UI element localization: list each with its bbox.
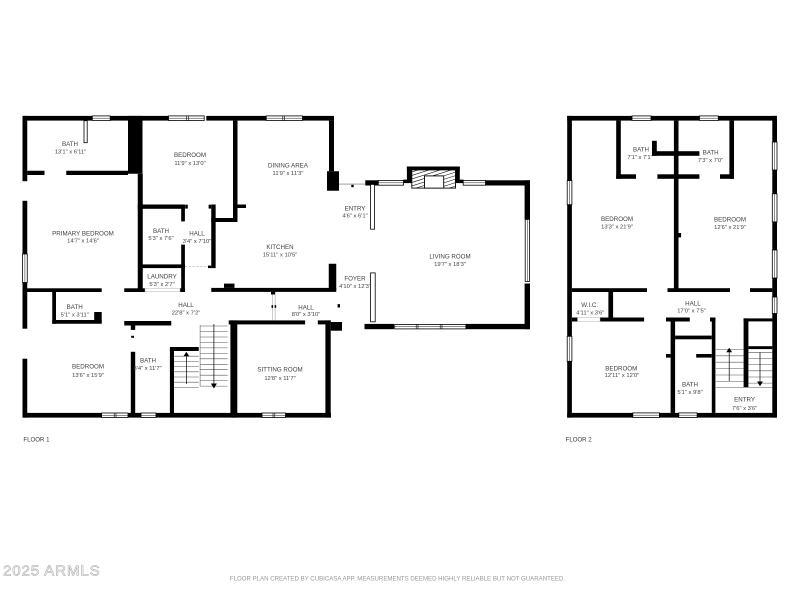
svg-text:HALL: HALL <box>189 231 205 238</box>
svg-text:22'8" x 7'2": 22'8" x 7'2" <box>172 310 201 316</box>
svg-text:13'6" x 15'9": 13'6" x 15'9" <box>72 373 104 379</box>
svg-text:4'10" x 12'3": 4'10" x 12'3" <box>339 284 371 290</box>
svg-text:15'11" x 10'5": 15'11" x 10'5" <box>263 252 298 258</box>
svg-text:BATH: BATH <box>633 147 649 154</box>
svg-text:BEDROOM: BEDROOM <box>174 152 206 159</box>
svg-text:5'3" x 2'7": 5'3" x 2'7" <box>149 282 174 288</box>
svg-text:12'8" x 11'7": 12'8" x 11'7" <box>264 376 295 382</box>
svg-text:LIVING ROOM: LIVING ROOM <box>429 254 470 261</box>
svg-text:7'1" x 7'1": 7'1" x 7'1" <box>627 155 652 161</box>
svg-text:4'6" x 6'1": 4'6" x 6'1" <box>342 214 367 220</box>
svg-text:FOYER: FOYER <box>344 276 366 283</box>
svg-text:BATH: BATH <box>703 150 719 157</box>
svg-text:SITTING ROOM: SITTING ROOM <box>257 367 302 374</box>
svg-text:BEDROOM: BEDROOM <box>605 365 637 372</box>
svg-text:7'3" x 7'0": 7'3" x 7'0" <box>698 158 723 164</box>
svg-text:DINING AREA: DINING AREA <box>268 163 309 170</box>
svg-text:PRIMARY BEDROOM: PRIMARY BEDROOM <box>52 230 114 237</box>
svg-text:FLOOR 1: FLOOR 1 <box>23 437 50 444</box>
svg-text:17'0" x 7'5": 17'0" x 7'5" <box>677 308 706 314</box>
svg-text:ENTRY: ENTRY <box>345 205 366 212</box>
svg-text:LAUNDRY: LAUNDRY <box>147 274 176 281</box>
svg-text:2025 ARMLS: 2025 ARMLS <box>3 563 101 580</box>
svg-text:8'0" x 3'10": 8'0" x 3'10" <box>292 312 321 318</box>
svg-text:HALL: HALL <box>298 304 314 311</box>
svg-text:BATH: BATH <box>140 357 156 364</box>
svg-text:5'1" x 3'11": 5'1" x 3'11" <box>61 313 89 319</box>
svg-text:12'6" x 21'9": 12'6" x 21'9" <box>714 225 746 231</box>
svg-text:ENTRY: ENTRY <box>734 397 755 404</box>
svg-text:BEDROOM: BEDROOM <box>601 216 633 223</box>
svg-text:FLOOR PLAN CREATED BY CUBICASA: FLOOR PLAN CREATED BY CUBICASA APP. MEAS… <box>230 576 565 583</box>
svg-text:5'1" x 9'8": 5'1" x 9'8" <box>677 390 702 396</box>
svg-text:BEDROOM: BEDROOM <box>714 217 746 224</box>
svg-text:7'6" x 3'6": 7'6" x 3'6" <box>732 406 757 412</box>
svg-text:HALL: HALL <box>685 300 701 307</box>
svg-text:BATH: BATH <box>153 228 169 235</box>
svg-text:BEDROOM: BEDROOM <box>72 363 104 370</box>
svg-text:4'11" x 3'6": 4'11" x 3'6" <box>576 311 604 317</box>
svg-text:11'9" x 11'3": 11'9" x 11'3" <box>273 171 304 177</box>
svg-text:13'3" x 21'9": 13'3" x 21'9" <box>601 225 633 231</box>
svg-text:19'7" x 18'3": 19'7" x 18'3" <box>434 262 466 268</box>
svg-text:3'4" x 7'10": 3'4" x 7'10" <box>183 239 212 245</box>
svg-text:KITCHEN: KITCHEN <box>266 244 293 251</box>
svg-text:12'11" x 12'0": 12'11" x 12'0" <box>605 373 640 379</box>
svg-text:BATH: BATH <box>62 141 78 148</box>
svg-text:W.I.C.: W.I.C. <box>581 302 598 309</box>
svg-text:HALL: HALL <box>178 302 194 309</box>
svg-text:14'7" x 14'6": 14'7" x 14'6" <box>67 239 99 245</box>
svg-text:BATH: BATH <box>682 382 698 389</box>
svg-text:8'4" x 11'7": 8'4" x 11'7" <box>134 366 162 372</box>
svg-text:13'1" x 6'11": 13'1" x 6'11" <box>55 150 86 156</box>
svg-text:5'3" x 7'6": 5'3" x 7'6" <box>148 236 173 242</box>
svg-text:11'9" x 13'0": 11'9" x 13'0" <box>174 161 205 167</box>
svg-text:BATH: BATH <box>67 304 83 311</box>
svg-text:FLOOR 2: FLOOR 2 <box>566 437 593 444</box>
